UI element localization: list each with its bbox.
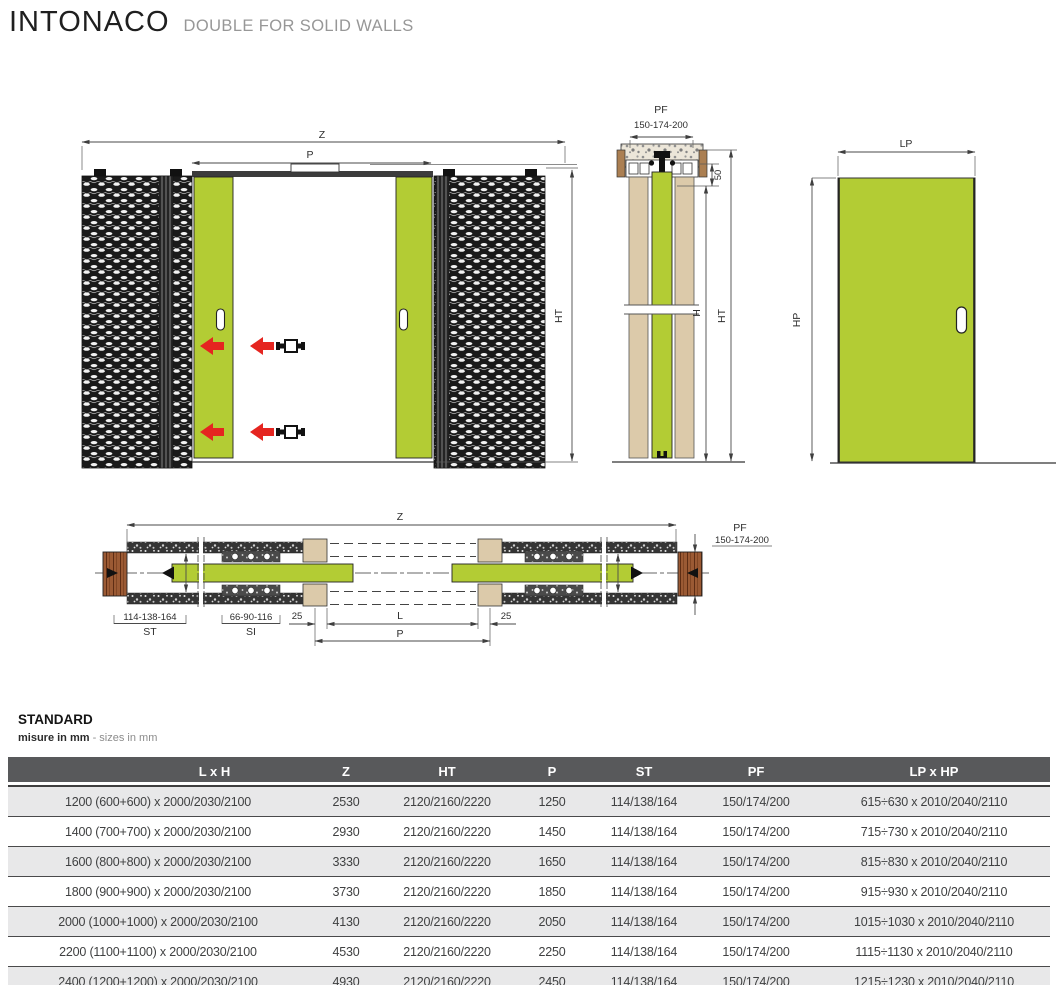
dim-label-p: P (396, 628, 403, 640)
cell-ht: 2120/2160/2220 (384, 786, 510, 817)
cell-lxh: 1200 (600+600) x 2000/2030/2100 (8, 786, 308, 817)
dim-label-hp: HP (791, 313, 803, 328)
cell-lpxhp: 1215÷1230 x 2010/2040/2110 (818, 967, 1050, 985)
cell-z: 2530 (308, 786, 384, 817)
wall-right-mesh (434, 176, 545, 468)
cell-pf: 150/174/200 (694, 817, 818, 847)
cell-z: 2930 (308, 817, 384, 847)
coupling-icon (276, 426, 305, 438)
door-panel (838, 178, 975, 462)
table-note-light: - sizes in mm (90, 732, 158, 744)
column-header-z: Z (308, 757, 384, 786)
cell-pf: 150/174/200 (694, 937, 818, 967)
cell-p: 2250 (510, 937, 594, 967)
cell-st: 114/138/164 (594, 967, 694, 985)
dim-values-pf: 150-174-200 (634, 120, 688, 131)
panel-view: LP HP (791, 138, 1056, 463)
plan-view: Z PF 150-174-200 114-138-164 ST 66-90-11… (95, 511, 772, 646)
cell-ht: 2120/2160/2220 (384, 937, 510, 967)
dim-label-ht: HT (553, 308, 565, 323)
cell-ht: 2120/2160/2220 (384, 847, 510, 877)
table-row: 1400 (700+700) x 2000/2030/210029302120/… (8, 817, 1050, 847)
table-row: 2000 (1000+1000) x 2000/2030/21004130212… (8, 907, 1050, 937)
coupling-icon (276, 340, 305, 352)
dim-label-lp: LP (900, 138, 913, 150)
cell-lxh: 2200 (1100+1100) x 2000/2030/2100 (8, 937, 308, 967)
cell-p: 2450 (510, 967, 594, 985)
dim-label-25-right: 25 (501, 611, 512, 622)
fixing-tab (94, 169, 106, 176)
door-section (652, 172, 672, 458)
cell-lpxhp: 715÷730 x 2010/2040/2110 (818, 817, 1050, 847)
cell-pf: 150/174/200 (694, 847, 818, 877)
break-gap (602, 537, 606, 609)
column-header-lxh: L x H (8, 757, 308, 786)
door-handle (957, 307, 967, 333)
column-header-pf: PF (694, 757, 818, 786)
dim-label-h: H (691, 309, 703, 317)
cell-pf: 150/174/200 (694, 877, 818, 907)
cell-p: 1450 (510, 817, 594, 847)
size-table: L x H Z HT P ST PF LP x HP 1200 (600+600… (8, 757, 1050, 985)
table-row: 1600 (800+800) x 2000/2030/210033302120/… (8, 847, 1050, 877)
jamb (478, 539, 502, 562)
cell-p: 1850 (510, 877, 594, 907)
cell-z: 3330 (308, 847, 384, 877)
dim-label-50: 50 (713, 170, 724, 181)
break-gap (199, 537, 203, 609)
section-view: PF 150-174-200 50 H HT (612, 104, 745, 462)
cell-pf: 150/174/200 (694, 907, 818, 937)
cell-lpxhp: 615÷630 x 2010/2040/2110 (818, 786, 1050, 817)
dim-label-pf: PF (733, 522, 746, 534)
jamb (303, 539, 327, 562)
cell-z: 4930 (308, 967, 384, 985)
dim-values-si: 66-90-116 (230, 612, 273, 623)
cell-lpxhp: 915÷930 x 2010/2040/2110 (818, 877, 1050, 907)
cell-pf: 150/174/200 (694, 967, 818, 985)
table-row: 2400 (1200+1200) x 2000/2030/21004930212… (8, 967, 1050, 985)
door-handle (217, 309, 225, 330)
dim-label-z: Z (397, 511, 404, 523)
door-tip-arrow (631, 567, 643, 580)
cell-lxh: 2400 (1200+1200) x 2000/2030/2100 (8, 967, 308, 985)
cell-lxh: 1600 (800+800) x 2000/2030/2100 (8, 847, 308, 877)
table-row: 1200 (600+600) x 2000/2030/210025302120/… (8, 786, 1050, 817)
red-arrow-icon (250, 337, 274, 355)
cell-st: 114/138/164 (594, 877, 694, 907)
break-gap (626, 305, 697, 314)
door-left-panel (194, 177, 233, 458)
dim-label-si: SI (246, 626, 256, 638)
cell-lpxhp: 1015÷1030 x 2010/2040/2110 (818, 907, 1050, 937)
cell-lxh: 2000 (1000+1000) x 2000/2030/2100 (8, 907, 308, 937)
table-header-row: L x H Z HT P ST PF LP x HP (8, 757, 1050, 786)
rail-joint-cover (291, 164, 339, 172)
dim-label-p: P (306, 149, 313, 161)
cell-z: 3730 (308, 877, 384, 907)
column-header-st: ST (594, 757, 694, 786)
cell-z: 4130 (308, 907, 384, 937)
dim-label-l: L (397, 610, 403, 622)
side-cap (699, 150, 707, 177)
table-title: STANDARD (18, 712, 93, 727)
cell-ht: 2120/2160/2220 (384, 967, 510, 985)
fixing-tab (443, 169, 455, 176)
cell-z: 4530 (308, 937, 384, 967)
cell-ht: 2120/2160/2220 (384, 817, 510, 847)
dim-label-z: Z (319, 129, 326, 141)
door-tip-arrow (162, 567, 174, 580)
cell-pf: 150/174/200 (694, 786, 818, 817)
cell-st: 114/138/164 (594, 786, 694, 817)
column-header-ht: HT (384, 757, 510, 786)
cell-p: 1650 (510, 847, 594, 877)
dim-label-st: ST (143, 626, 157, 638)
cell-st: 114/138/164 (594, 817, 694, 847)
table-note: misure in mm - sizes in mm (18, 732, 157, 744)
side-cap (617, 150, 625, 177)
front-view: Z P HT (82, 129, 578, 468)
dim-label-25-left: 25 (292, 611, 303, 622)
cell-ht: 2120/2160/2220 (384, 877, 510, 907)
cell-lxh: 1800 (900+900) x 2000/2030/2100 (8, 877, 308, 907)
cell-lpxhp: 815÷830 x 2010/2040/2110 (818, 847, 1050, 877)
dim-values-st: 114-138-164 (123, 612, 176, 623)
cell-lpxhp: 1115÷1130 x 2010/2040/2110 (818, 937, 1050, 967)
wall-left-seam (159, 176, 173, 468)
cell-lxh: 1400 (700+700) x 2000/2030/2100 (8, 817, 308, 847)
door-handle (400, 309, 408, 330)
column-header-p: P (510, 757, 594, 786)
jamb (303, 584, 327, 606)
red-arrow-icon (250, 423, 274, 441)
cell-p: 2050 (510, 907, 594, 937)
cell-st: 114/138/164 (594, 847, 694, 877)
cell-p: 1250 (510, 786, 594, 817)
table-note-bold: misure in mm (18, 732, 90, 744)
datasheet-page: INTONACO DOUBLE FOR SOLID WALLS (0, 0, 1059, 985)
wall-leaf (629, 177, 648, 458)
wall-right-seam (436, 176, 449, 468)
jamb (478, 584, 502, 606)
coupling-icons (276, 340, 305, 438)
table-row: 1800 (900+900) x 2000/2030/210037302120/… (8, 877, 1050, 907)
dim-values-pf: 150-174-200 (715, 535, 769, 546)
column-header-lpxhp: LP x HP (818, 757, 1050, 786)
drawings-svg: Z P HT (0, 0, 1059, 700)
fixing-tab (170, 169, 182, 176)
cell-st: 114/138/164 (594, 937, 694, 967)
table-row: 2200 (1100+1100) x 2000/2030/21004530212… (8, 937, 1050, 967)
technical-drawings: Z P HT (0, 0, 1059, 705)
dim-label-ht: HT (716, 308, 728, 323)
fixing-tab (525, 169, 537, 176)
cell-st: 114/138/164 (594, 907, 694, 937)
dim-label-pf: PF (654, 104, 667, 116)
cell-ht: 2120/2160/2220 (384, 907, 510, 937)
wall-left-mesh (82, 176, 192, 468)
